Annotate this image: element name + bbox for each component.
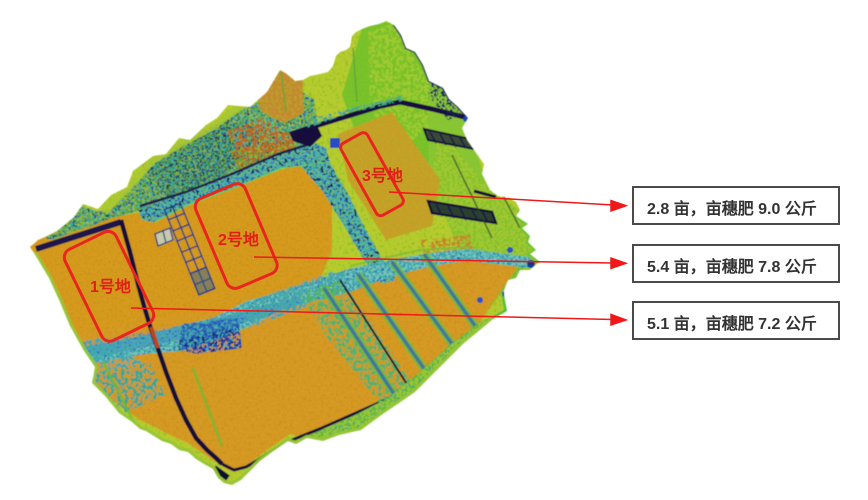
- svg-text:3号地: 3号地: [362, 166, 403, 185]
- svg-text:2号地: 2号地: [218, 230, 259, 249]
- svg-text:1号地: 1号地: [90, 277, 131, 296]
